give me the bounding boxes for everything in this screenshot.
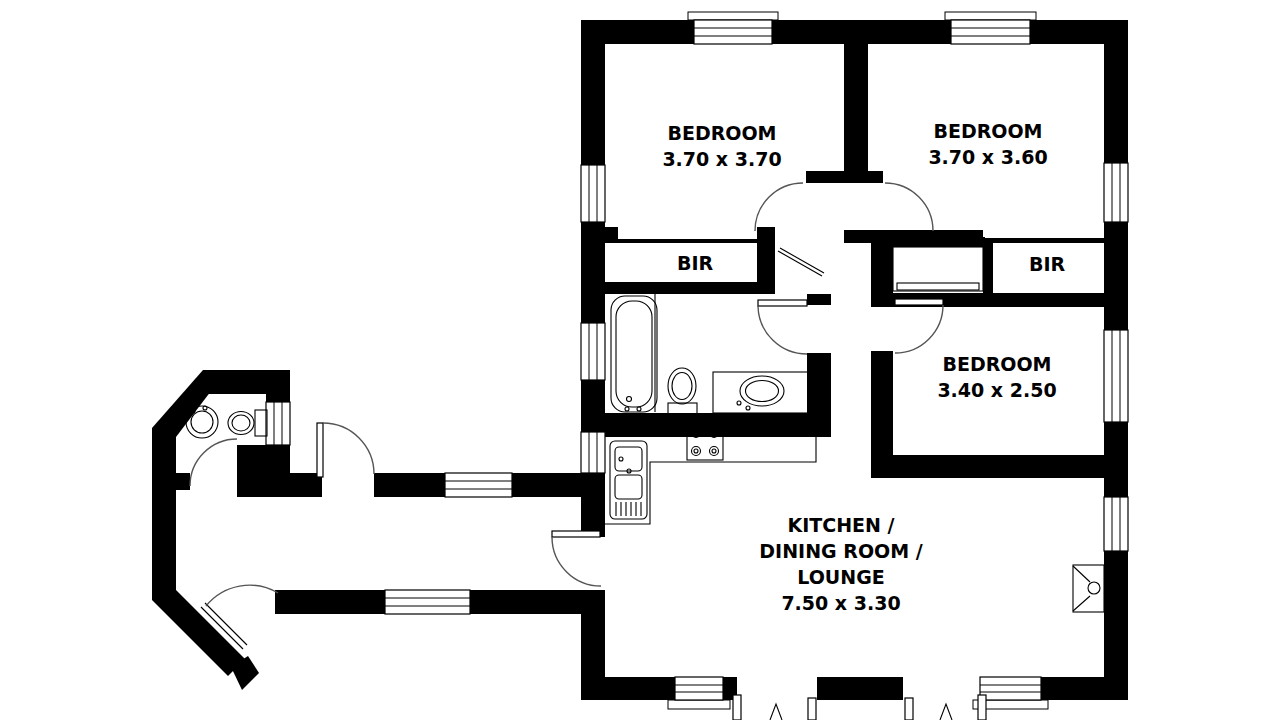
- bathtub-tap: [637, 407, 641, 411]
- bedroom1-dims: 3.70 x 3.70: [662, 148, 781, 170]
- french-door-opening: [737, 677, 817, 700]
- window: [581, 323, 605, 380]
- door-swing-chevron: [940, 704, 952, 720]
- door-arc-bedroom2: [885, 183, 933, 231]
- french-door-panel: [905, 698, 913, 720]
- door-arc-side-entry: [323, 423, 374, 474]
- door-swing-chevron: [770, 704, 782, 720]
- window: [1104, 497, 1128, 551]
- french-door-opening: [903, 677, 980, 700]
- wall-segment: [806, 171, 883, 183]
- door-arc-entry: [206, 585, 278, 606]
- bedroom3-dims: 3.40 x 2.50: [937, 379, 1056, 401]
- wall-segment: [176, 473, 190, 490]
- living-label-line1: KITCHEN /: [787, 514, 894, 536]
- sink-drainer: [616, 502, 641, 516]
- window: [581, 432, 605, 473]
- window-sill: [688, 12, 778, 20]
- bedroom2-label: BEDROOM: [933, 120, 1042, 142]
- window: [980, 677, 1041, 700]
- window: [581, 165, 605, 222]
- bedroom3-label: BEDROOM: [942, 353, 1051, 375]
- living-label-line3: LOUNGE: [797, 566, 885, 588]
- french-door-panel: [808, 698, 816, 720]
- window: [445, 473, 512, 497]
- kitchen-sink-bowl: [615, 475, 642, 499]
- door-leaf-side-entry: [317, 423, 323, 477]
- robe-sliding-doors: [897, 283, 979, 290]
- window: [1104, 330, 1128, 422]
- kitchen-tap: [619, 457, 623, 461]
- vanity-tap: [746, 406, 750, 410]
- wall-segment: [605, 282, 775, 294]
- window: [385, 590, 470, 614]
- window-sill: [668, 700, 730, 709]
- wall-segment: [152, 370, 227, 437]
- wall-segment: [605, 227, 618, 243]
- french-door-panel: [733, 695, 741, 720]
- fireplace-icon: [1073, 565, 1104, 612]
- floor-plan-drawing: BEDROOM 3.70 x 3.70 BEDROOM 3.70 x 3.60 …: [0, 0, 1280, 720]
- living-dims: 7.50 x 3.30: [781, 592, 900, 614]
- wall-segment: [844, 44, 868, 183]
- room-labels: BEDROOM 3.70 x 3.70 BEDROOM 3.70 x 3.60 …: [662, 120, 1065, 614]
- door-arc-bedroom1: [755, 183, 803, 231]
- wc-toilet-bowl: [232, 415, 250, 431]
- wall-segment: [993, 238, 1104, 243]
- wall-segment: [871, 235, 893, 303]
- window: [1104, 163, 1128, 222]
- bathtub-inner: [616, 301, 652, 407]
- doorway-gap: [581, 537, 605, 590]
- window: [266, 402, 290, 445]
- bathtub-icon: [611, 296, 657, 412]
- wall-segment: [983, 238, 993, 293]
- bathtub-drain: [627, 397, 632, 402]
- window: [694, 20, 772, 44]
- wall-segment: [581, 20, 1128, 44]
- door-leaf-kitchen: [552, 531, 600, 537]
- door-arc-bedroom3: [895, 305, 943, 353]
- wc-basin-inner: [191, 411, 213, 433]
- window: [675, 677, 723, 700]
- wall-segment: [581, 677, 1128, 700]
- toilet-bowl: [672, 373, 692, 400]
- living-label-line2: DINING ROOM /: [759, 540, 922, 562]
- door-arc-wc: [190, 439, 237, 486]
- bedroom1-label: BEDROOM: [667, 122, 776, 144]
- wall-segment: [807, 294, 831, 305]
- door-arc-bathroom: [758, 306, 807, 354]
- kitchen-counter: [605, 437, 816, 524]
- wall-segment: [871, 351, 893, 455]
- vanity-counter: [713, 372, 808, 413]
- wall-segment: [618, 239, 757, 243]
- bir2-label: BIR: [1029, 253, 1066, 275]
- vanity-tap: [737, 401, 741, 405]
- wc-toilet-cistern: [255, 410, 267, 436]
- robe-interior: [893, 247, 983, 291]
- door-leaf-hall: [778, 248, 824, 276]
- french-door-panel: [978, 695, 986, 720]
- wall-segment: [893, 237, 985, 247]
- window: [951, 20, 1030, 44]
- vanity-sink-inner: [746, 381, 779, 402]
- floor-plan-page: BEDROOM 3.70 x 3.70 BEDROOM 3.70 x 3.60 …: [0, 0, 1280, 720]
- bathtub-tap: [625, 407, 629, 411]
- door-leaf-bedroom3: [895, 299, 943, 305]
- wall-segment: [871, 455, 1128, 478]
- bedroom2-dims: 3.70 x 3.60: [928, 146, 1047, 168]
- wall-segment: [152, 428, 176, 600]
- window-sill: [945, 12, 1036, 20]
- toilet-cistern: [668, 403, 697, 414]
- bir1-label: BIR: [677, 252, 714, 274]
- door-leaf-bathroom: [758, 300, 807, 306]
